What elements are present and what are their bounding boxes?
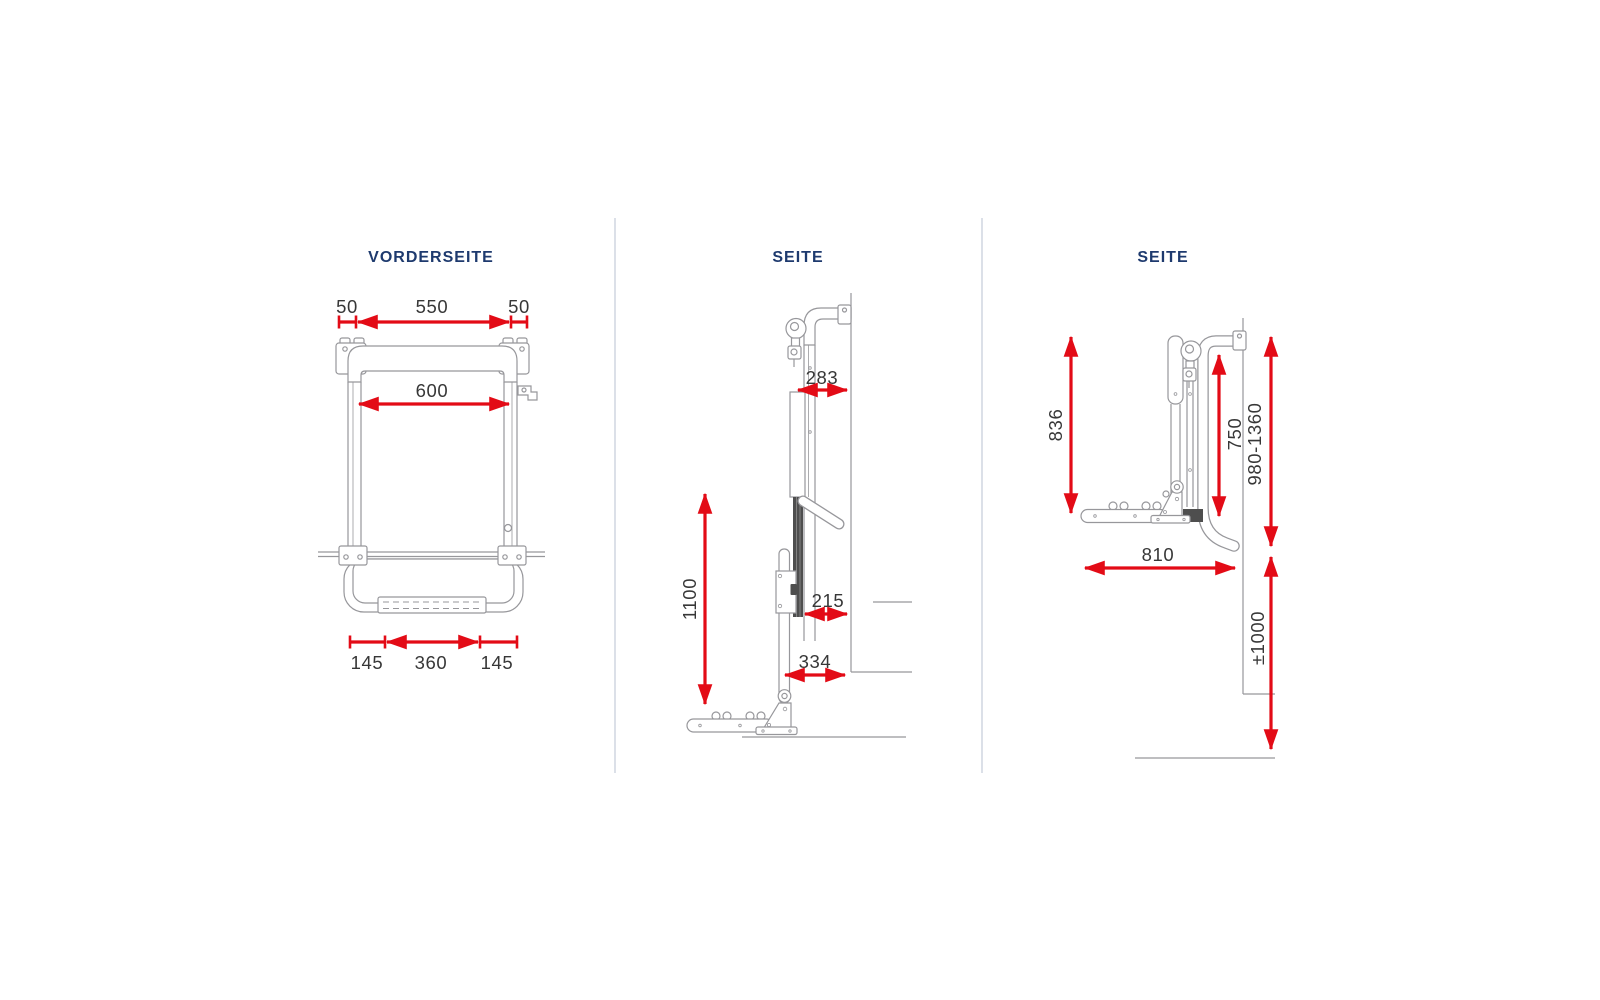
dim-label-600: 600 [416, 380, 449, 401]
bike-rack-side-raised-drawing [1081, 318, 1275, 758]
dim-label-750: 750 [1224, 418, 1245, 451]
dimension-drawing-svg: VORDERSEITE [0, 0, 1600, 1000]
side-lowered-title: SEITE [772, 249, 823, 266]
side-raised-title: SEITE [1137, 249, 1188, 266]
dim-label-215: 215 [812, 590, 845, 611]
side-raised-view-panel: SEITE [1045, 249, 1275, 758]
front-lower-u-frame [344, 559, 523, 613]
side-lowered-view-panel: SEITE [679, 249, 912, 737]
dim-label-50-right: 50 [508, 296, 530, 317]
bike-hook-arm [803, 501, 839, 524]
front-vertical-rails [348, 382, 517, 553]
dim-label-1100: 1100 [679, 578, 700, 620]
dim-label-145-left: 145 [351, 652, 384, 673]
dim-label-360: 360 [415, 652, 448, 673]
pivot-bracket-raised [1159, 492, 1182, 517]
front-crossbar-tube [348, 346, 517, 382]
slide-rail-carriage [776, 549, 797, 703]
pivot-hinge-raised [1171, 481, 1183, 493]
pivot-hinge [778, 690, 791, 703]
dim-label-810: 810 [1142, 544, 1175, 565]
rail-cover-panel [790, 392, 805, 497]
step-plate [378, 597, 486, 613]
front-dimension-top: 50 550 50 [336, 296, 530, 329]
diagram-canvas: VORDERSEITE [0, 0, 1600, 1000]
tension-knob [786, 319, 806, 368]
dim-label-836: 836 [1045, 409, 1066, 442]
dim-label-50-left: 50 [336, 296, 358, 317]
dim-label-550: 550 [416, 296, 449, 317]
front-view-panel: VORDERSEITE [318, 249, 545, 673]
dim-label-plus-minus-1000: ±1000 [1247, 611, 1268, 665]
front-right-latch [518, 386, 537, 400]
side-lowered-dimensions: 283 1100 215 334 [679, 367, 847, 704]
inner-rail-raised [1187, 362, 1193, 507]
dim-label-145-right: 145 [481, 652, 514, 673]
dim-label-980-1360: 980-1360 [1244, 403, 1265, 486]
front-view-title: VORDERSEITE [368, 249, 494, 266]
front-dimension-inner-width: 600 [359, 380, 509, 404]
dim-label-283: 283 [806, 367, 839, 388]
front-dimension-bottom: 145 360 145 [350, 636, 517, 674]
dim-label-334: 334 [799, 651, 832, 672]
rail-knob-detail [505, 525, 512, 532]
platform-raised-assembly [1081, 481, 1203, 523]
